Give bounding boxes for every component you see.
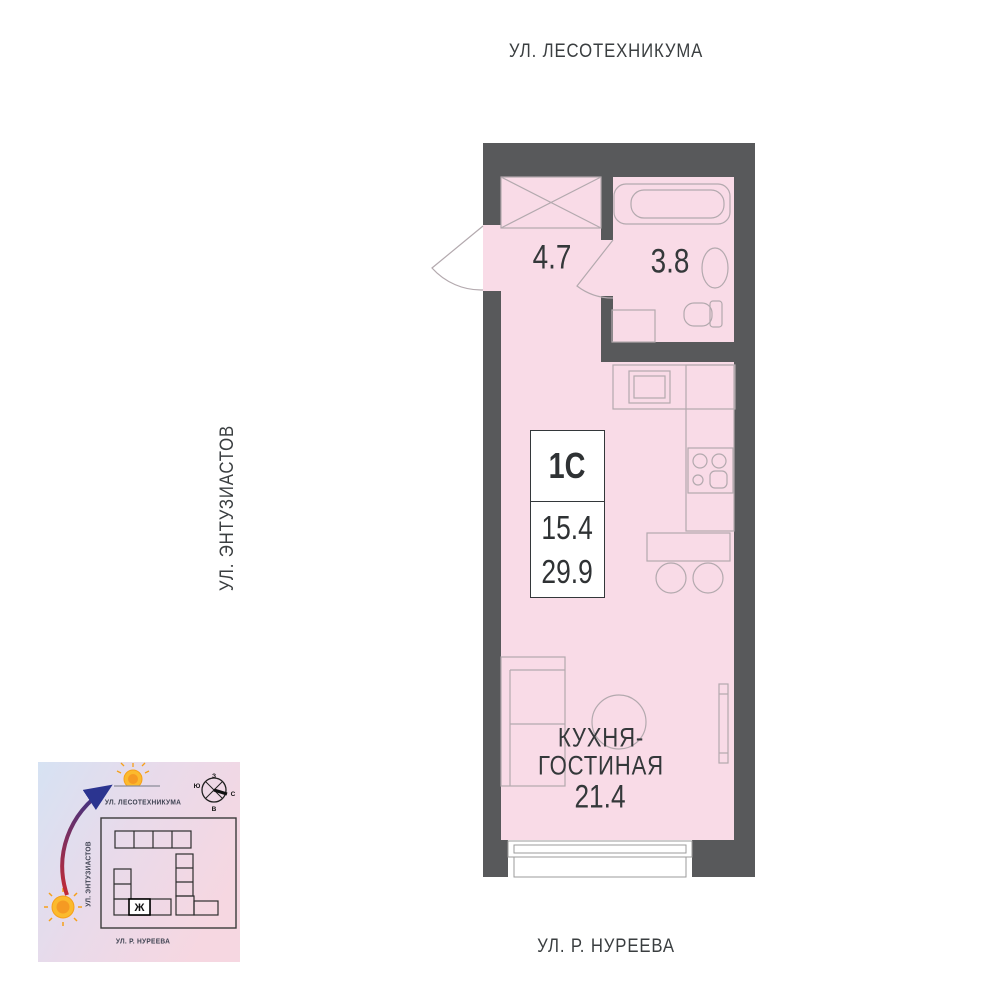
wall-bathroom-left-upper — [601, 177, 613, 240]
window — [508, 841, 692, 877]
unit-areas: 15.4 29.9 — [531, 502, 604, 597]
subject-building-label: Ж — [134, 902, 145, 914]
minimap-street-top: УЛ. ЛЕСОТЕХНИКУМА — [100, 798, 187, 807]
bathroom-area-label: 3.8 — [646, 243, 693, 282]
compass-north-label: С — [231, 791, 236, 798]
window-frame — [508, 841, 692, 857]
wall-left-lower — [483, 291, 501, 877]
unit-info-box: 1С 15.4 29.9 — [530, 430, 605, 598]
compass-east-label: В — [212, 806, 217, 813]
kitchen-living-name-line1: КУХНЯ- — [548, 723, 653, 754]
street-label-bottom: УЛ. Р. НУРЕЕВА — [528, 936, 685, 958]
entrance-door — [432, 226, 483, 290]
street-label-left: УЛ. ЭНТУЗИАСТОВ — [217, 414, 239, 603]
minimap-street-bottom: УЛ. Р. НУРЕЕВА — [112, 937, 174, 946]
kitchen-living-name-line2: ГОСТИНАЯ — [524, 751, 678, 782]
compass-south-label: Ю — [194, 783, 201, 790]
hallway-area-label: 4.7 — [528, 239, 575, 278]
minimap-card — [38, 762, 240, 962]
wall-top — [483, 143, 755, 177]
unit-living-area: 15.4 — [542, 508, 593, 548]
floorplan-drawing: Ж З С В Ю — [0, 0, 1000, 1000]
compass-west-label: З — [212, 773, 216, 780]
kitchen-living-area-label: 21.4 — [569, 779, 631, 816]
window-sill — [514, 857, 686, 877]
location-minimap: Ж З С В Ю — [38, 762, 240, 962]
wall-left-upper — [483, 143, 501, 225]
wall-right — [734, 143, 755, 877]
unit-total-area: 29.9 — [542, 552, 593, 592]
wall-bottom-left-stub — [483, 840, 508, 877]
floorplan-page: Ж З С В Ю УЛ. ЛЕСОТЕХНИКУМА УЛ. ЭНТУЗИАС… — [0, 0, 1000, 1000]
street-label-top: УЛ. ЛЕСОТЕХНИКУМА — [496, 41, 717, 63]
wall-bathroom-left-lower — [601, 296, 613, 342]
wall-bottom-right-stub — [692, 840, 755, 877]
wall-bathroom-bottom — [601, 342, 755, 362]
unit-type-badge: 1С — [531, 431, 604, 502]
minimap-street-left: УЛ. ЭНТУЗИАСТОВ — [84, 837, 93, 912]
entrance-opening-floor — [483, 225, 501, 291]
